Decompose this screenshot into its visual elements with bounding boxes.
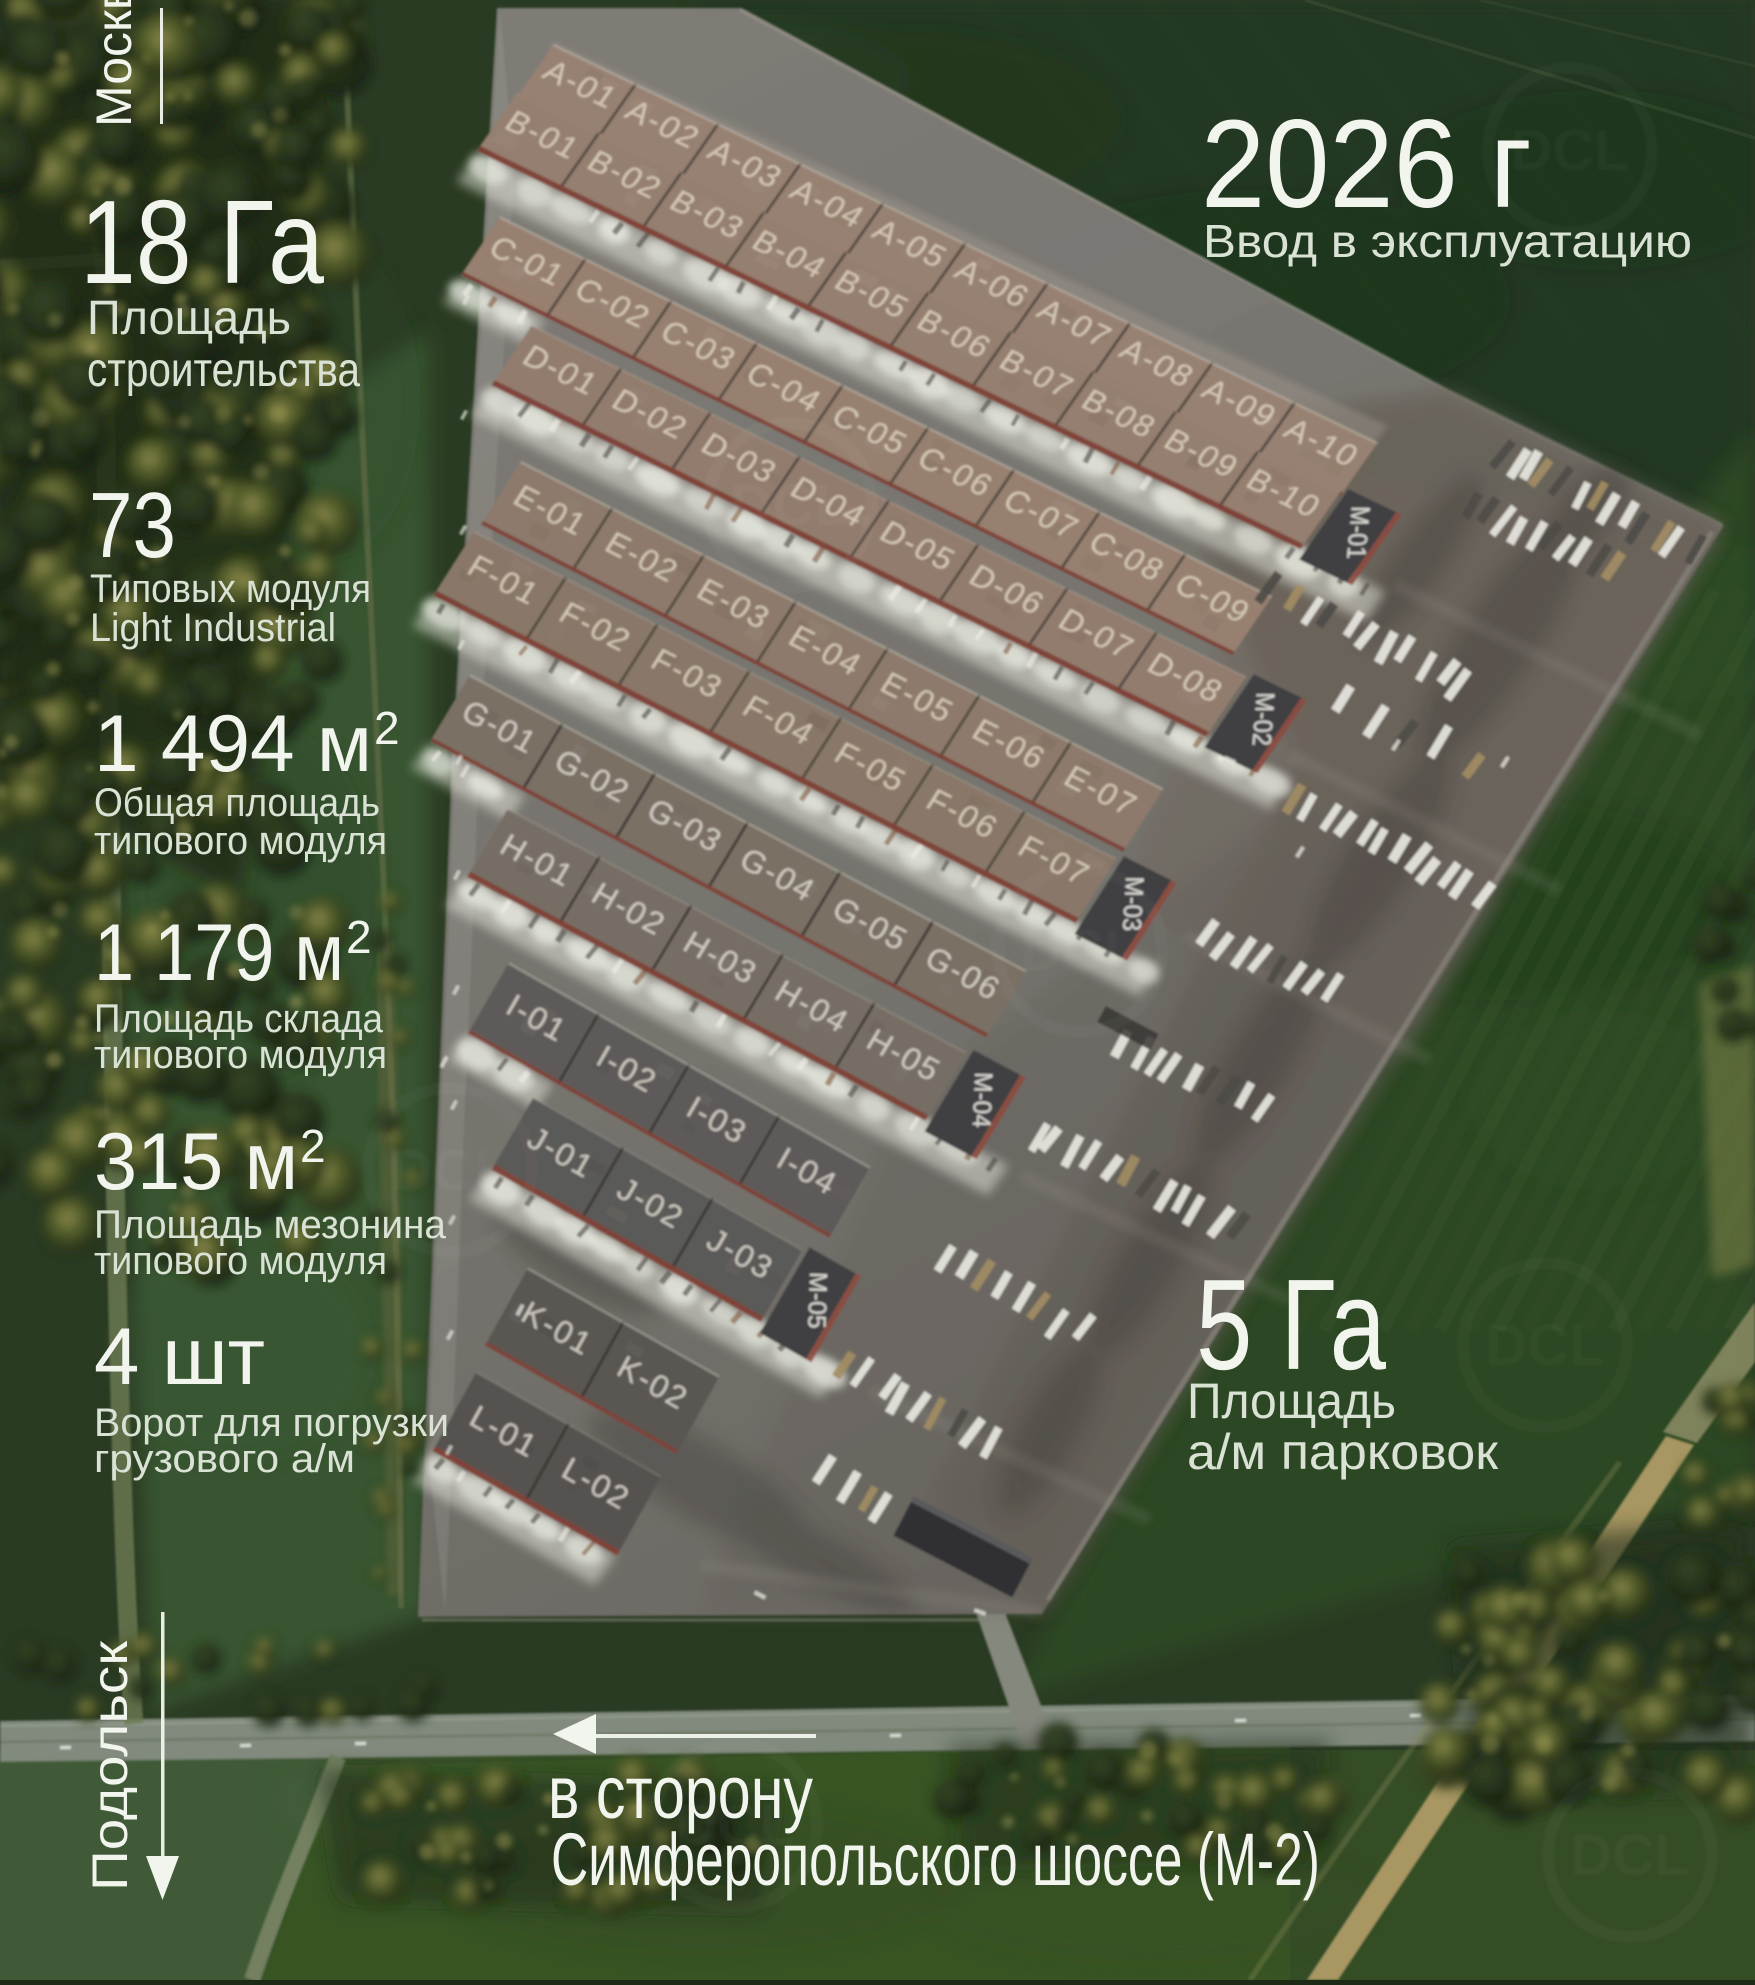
svg-text:типового модуля: типового модуля xyxy=(94,1033,387,1077)
svg-text:Москва: Москва xyxy=(86,0,142,127)
svg-text:строительства: строительства xyxy=(87,344,360,397)
svg-text:Площадь: Площадь xyxy=(87,292,291,345)
svg-text:1 494 м: 1 494 м xyxy=(94,699,372,789)
svg-text:Light Industrial: Light Industrial xyxy=(90,606,336,650)
svg-text:73: 73 xyxy=(89,473,176,577)
svg-text:Площадь: Площадь xyxy=(1187,1373,1396,1429)
svg-text:Ввод в эксплуатацию: Ввод в эксплуатацию xyxy=(1203,215,1692,267)
svg-text:2026 г: 2026 г xyxy=(1201,95,1532,234)
svg-text:Подольск: Подольск xyxy=(82,1640,138,1891)
svg-text:грузового а/м: грузового а/м xyxy=(94,1437,355,1481)
svg-text:Симферопольского шоссе (М-2): Симферопольского шоссе (М-2) xyxy=(551,1818,1320,1901)
svg-text:типового модуля: типового модуля xyxy=(94,1239,387,1283)
svg-text:315 м: 315 м xyxy=(94,1117,298,1207)
svg-text:1 179 м: 1 179 м xyxy=(94,908,344,998)
svg-text:18 Га: 18 Га xyxy=(80,176,325,309)
svg-text:типового модуля: типового модуля xyxy=(94,819,387,863)
svg-text:2: 2 xyxy=(346,911,372,963)
svg-text:а/м парковок: а/м парковок xyxy=(1187,1424,1499,1480)
svg-text:4 шт: 4 шт xyxy=(94,1312,265,1402)
svg-text:Типовых модуля: Типовых модуля xyxy=(90,567,371,611)
svg-text:2: 2 xyxy=(374,702,400,754)
svg-text:2: 2 xyxy=(300,1120,326,1172)
